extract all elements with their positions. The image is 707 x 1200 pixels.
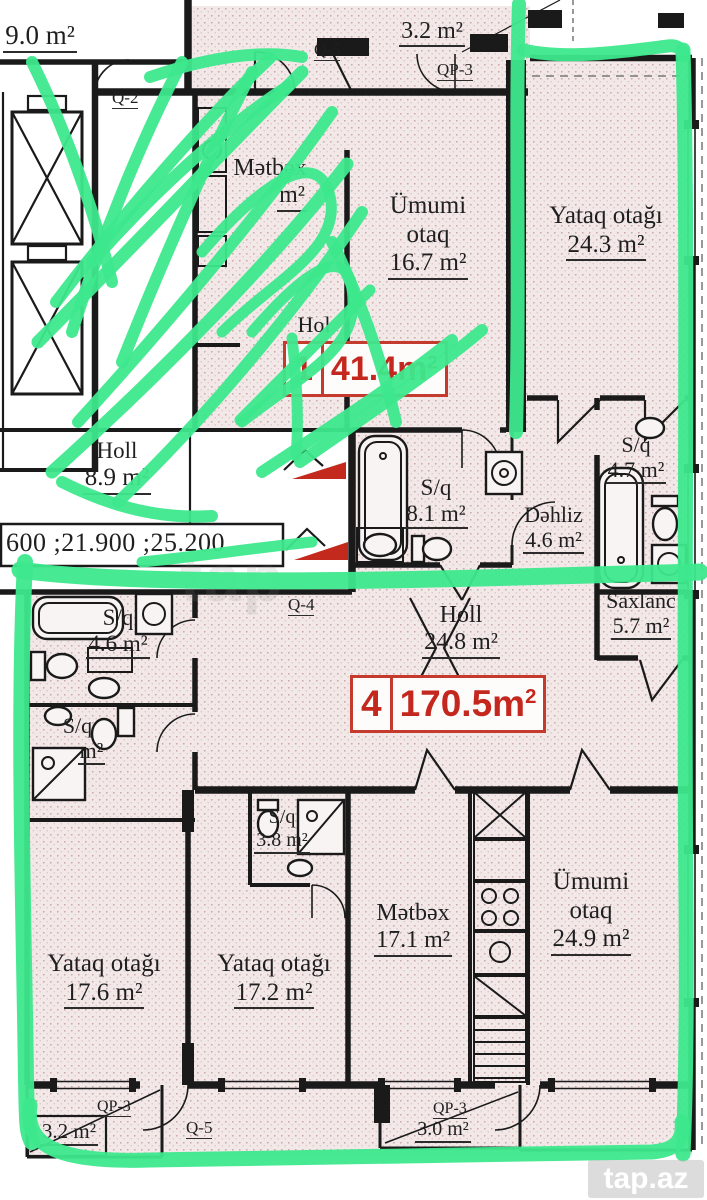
room-label-holl-left: Holl 8.9 m² (55, 438, 179, 495)
toilet-icon (412, 536, 451, 562)
washer-icon (652, 545, 686, 583)
room-label-metbex-2: Mətbəx 17.1 m² (352, 900, 474, 957)
unit-number: 4 (353, 678, 393, 730)
unit-area: 170.5m2 (393, 678, 544, 730)
unit-number: 1 (286, 344, 324, 394)
code-label-qp3-bl: QP-3 (97, 1098, 131, 1117)
room-label-dehliz: Dəhliz 4.6 m² (506, 502, 601, 554)
room-label-umumi-otaq-2: Ümumi otaq 24.9 m² (528, 868, 654, 956)
washer-icon (486, 452, 522, 494)
code-label-q2: Q-2 (112, 88, 138, 109)
area-box-unit-4: 4 170.5m2 (350, 675, 546, 733)
room-label-yataq-1: Yataq otağı 24.3 m² (520, 202, 692, 261)
room-label-sq-lower: S/q m² (30, 713, 125, 765)
balcony-label-bl: 3.2 m² (32, 1120, 106, 1146)
code-label-q4: Q-4 (288, 595, 314, 616)
code-label-q5-top: Q-5 (314, 40, 340, 61)
room-label-saxlanc: Saxlanc 5.7 m² (588, 588, 694, 640)
room-label-sq-38: S/q 3.8 m² (240, 806, 324, 854)
elevator-shafts (3, 92, 82, 470)
code-label-qp3-top: QP-3 (437, 60, 473, 81)
room-label-hol-small: Hol (284, 312, 344, 337)
dimension-text: 600 ;21.900 ;25.200 (6, 528, 280, 558)
toilet-icon (652, 496, 678, 540)
room-label-yataq-3: Yataq otağı 17.2 m² (190, 950, 358, 1009)
room-label-lobby: 9.0 m² (0, 20, 84, 53)
code-label-qp3-br: QP-3 (433, 1100, 467, 1119)
room-label-holl-248: Holl 24.8 m² (405, 602, 517, 659)
room-label-metbex-1: Mətbəx m² (210, 155, 330, 212)
bathtub-icon (599, 468, 643, 588)
balcony-label-top: 3.2 m² (378, 18, 486, 47)
balcony-label-br: 3.0 m² (398, 1118, 488, 1143)
section-arrow-icon (284, 450, 348, 560)
room-label-sq-81: S/q 8.1 m² (393, 475, 479, 529)
room-label-umumi-otaq-1: Ümumi otaq 16.7 m² (366, 192, 490, 280)
unit-area: 41.4m2 (324, 344, 445, 394)
room-label-yataq-2: Yataq otağı 17.6 m² (20, 950, 188, 1009)
code-label-q5-bottom: Q-5 (186, 1118, 212, 1139)
room-label-sq-47: S/q 4.7 m² (598, 432, 674, 484)
area-box-unit-1: 1 41.4m2 (283, 341, 448, 397)
sink-icon (288, 860, 312, 876)
floorplan-screenshot: tap 9.0 m² Q-2 Q-5 QP-3 3.2 m² Mətbəx m²… (0, 0, 707, 1200)
tapaz-watermark: tap.az (588, 1160, 704, 1198)
room-label-sq-46: S/q 4.6 m² (62, 605, 174, 659)
